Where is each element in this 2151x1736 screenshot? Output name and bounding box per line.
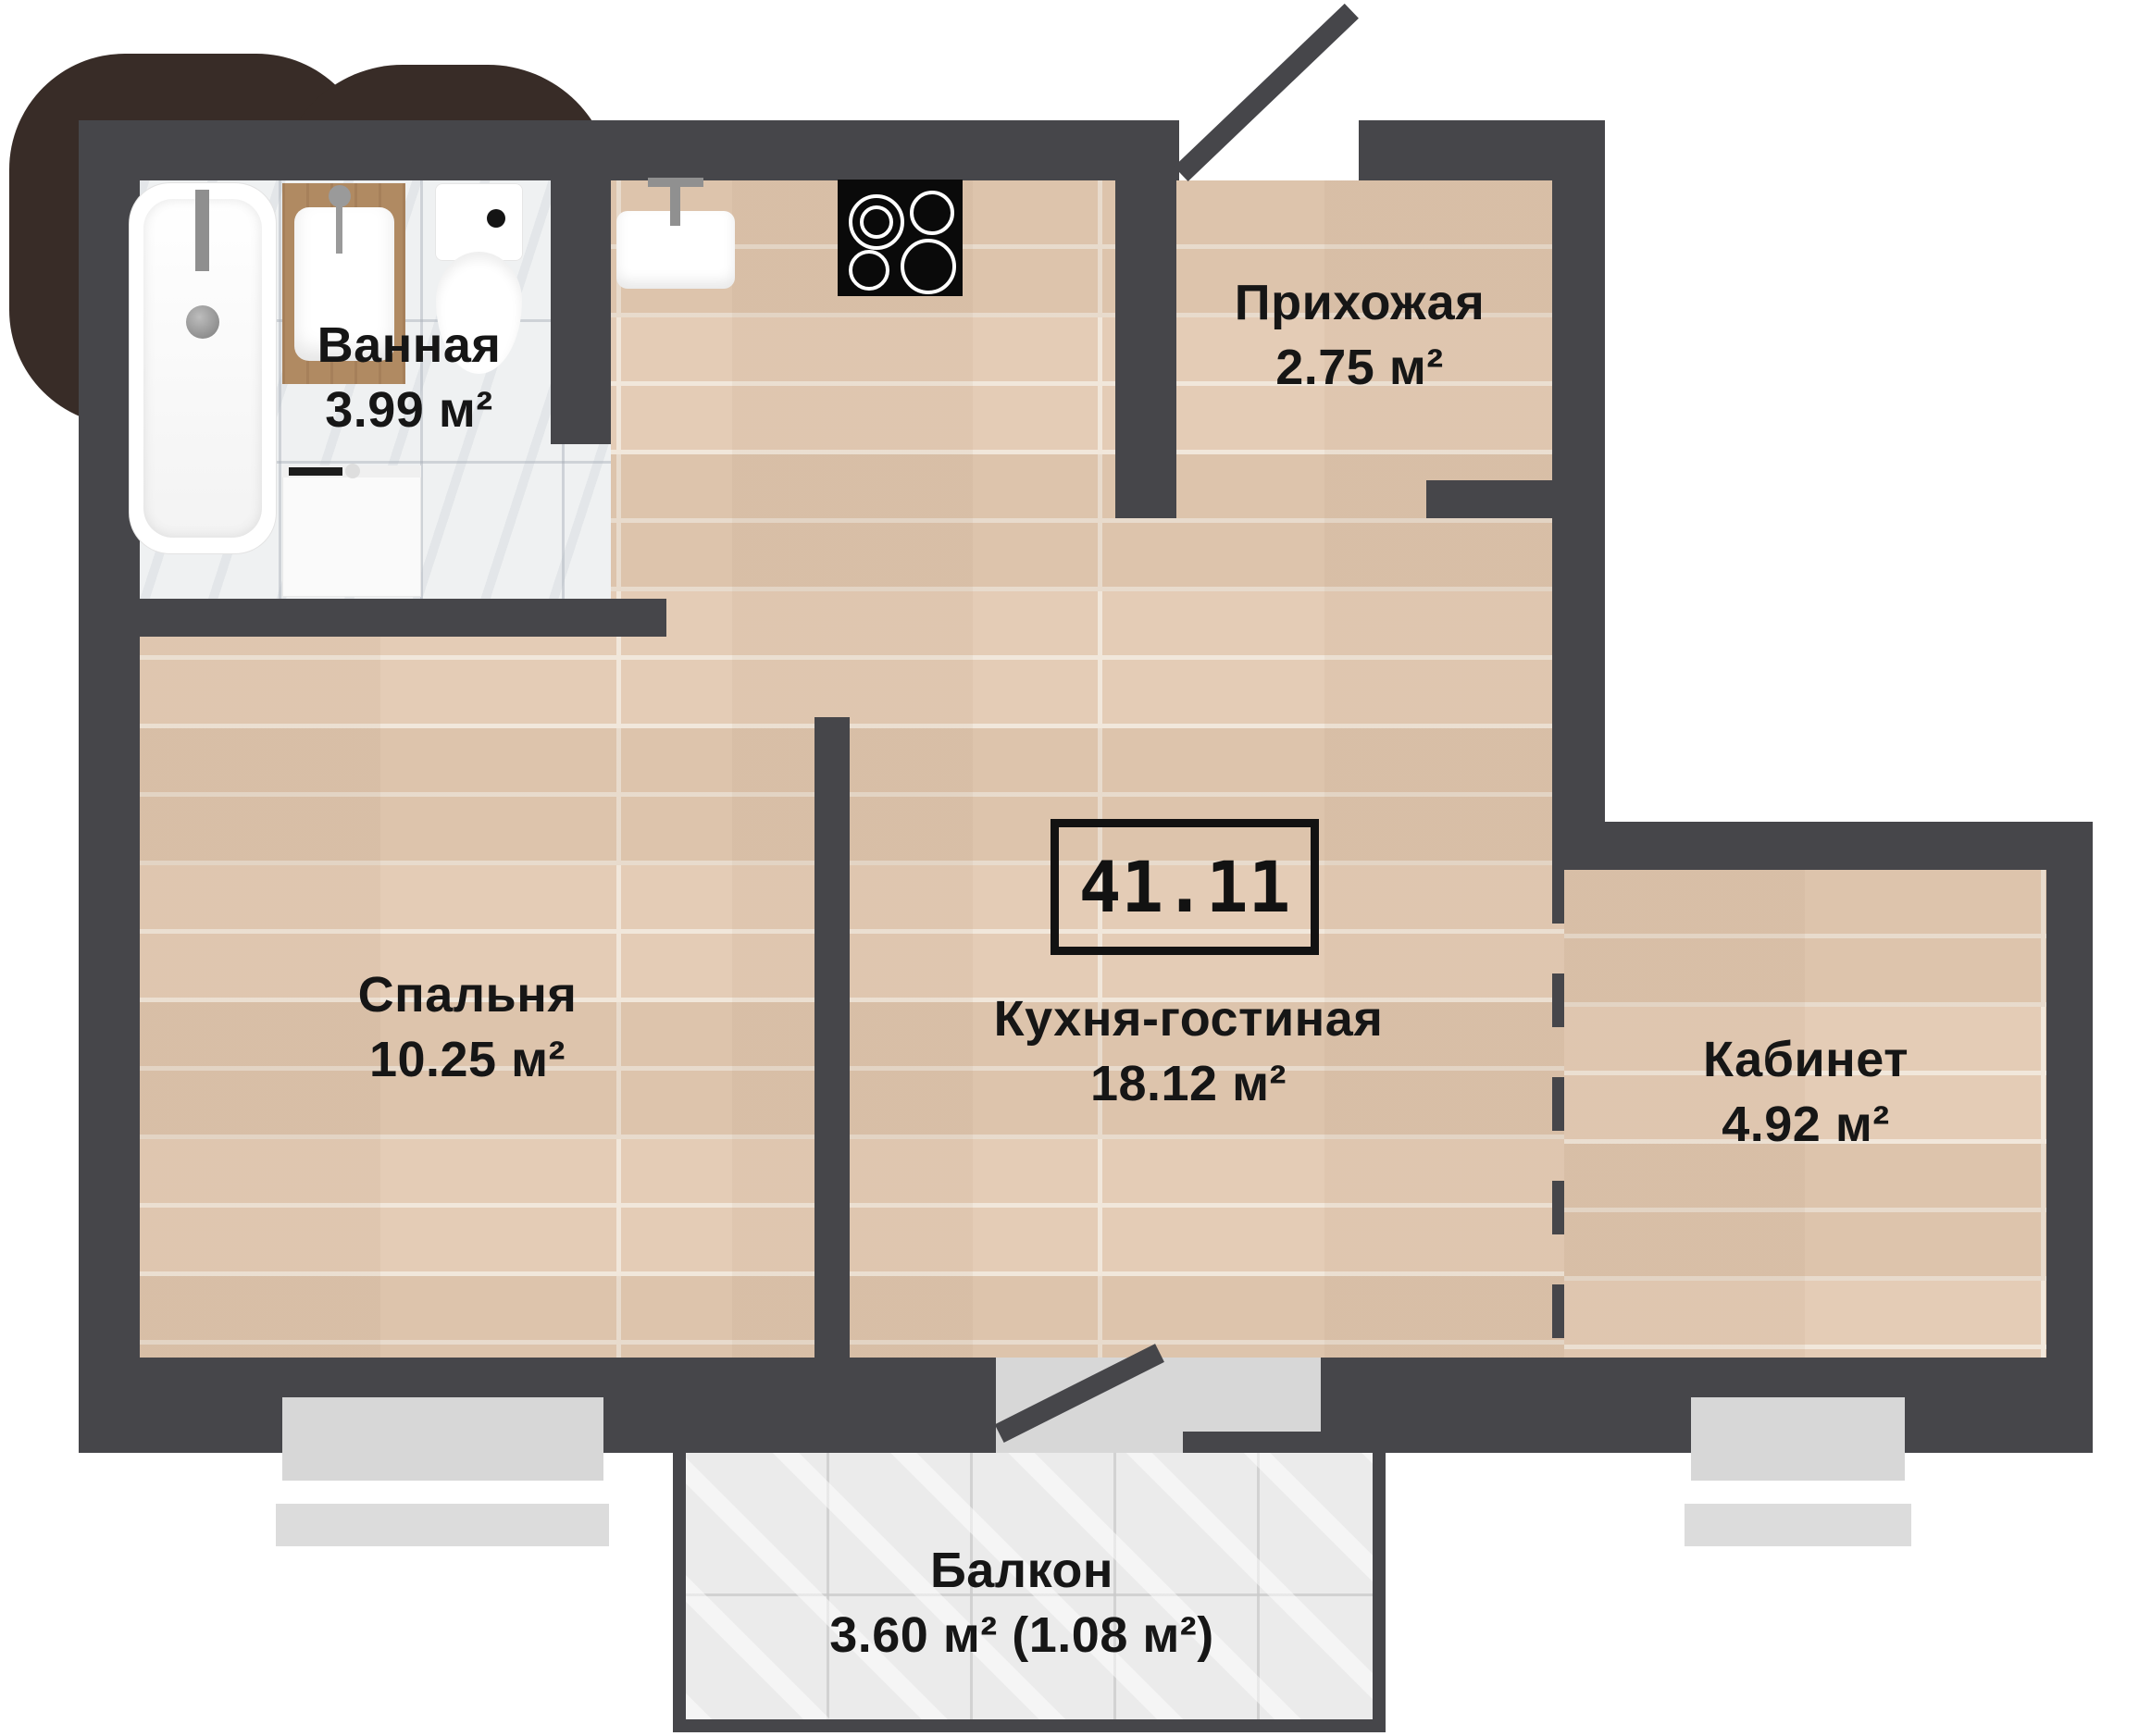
wall-hallway-bottom-stub xyxy=(1426,480,1552,518)
room-name-bathroom: Ванная xyxy=(131,313,687,378)
washing-machine xyxy=(282,465,421,597)
entrance-door-leaf xyxy=(1174,4,1359,181)
room-area-hallway: 2.75 м² xyxy=(1128,335,1591,400)
stove-burner-bottom-right xyxy=(901,239,956,294)
bedroom-window xyxy=(282,1397,603,1481)
stove-burner-bottom-left xyxy=(849,250,889,291)
washing-machine-display xyxy=(289,467,342,476)
total-area-value: 41.11 xyxy=(1079,846,1291,928)
room-name-office: Кабинет xyxy=(1528,1027,2083,1092)
bathtub-faucet xyxy=(195,190,209,271)
room-label-kitchen-living: Кухня-гостиная 18.12 м² xyxy=(818,986,1559,1116)
room-label-balcony: Балкон 3.60 м² (1.08 м²) xyxy=(652,1538,1392,1668)
room-label-bathroom: Ванная 3.99 м² xyxy=(131,313,687,442)
bathroom-sink-faucet-knob xyxy=(329,185,351,207)
room-name-bedroom: Спальня xyxy=(190,962,745,1027)
toilet-tank xyxy=(435,183,523,261)
office-window-sill xyxy=(1685,1504,1911,1546)
room-area-balcony: 3.60 м² (1.08 м²) xyxy=(652,1603,1392,1668)
stove-burner-ring-inner xyxy=(860,205,893,239)
room-area-office: 4.92 м² xyxy=(1528,1092,2083,1157)
wall-office-top xyxy=(1552,822,2093,870)
stove-burner-top-right xyxy=(910,191,954,235)
balcony-window-sill-wall xyxy=(1183,1432,1321,1453)
room-area-kitchen-living: 18.12 м² xyxy=(818,1051,1559,1116)
floor-plan: Ванная 3.99 м² Прихожая 2.75 м² Спальня … xyxy=(0,0,2151,1736)
total-area-box: 41.11 xyxy=(1051,819,1319,955)
wall-bathroom-bottom xyxy=(79,599,666,637)
kitchen-faucet-stem xyxy=(670,183,680,226)
kitchen-sink xyxy=(611,178,742,291)
room-label-bedroom: Спальня 10.25 м² xyxy=(190,962,745,1092)
room-label-hallway: Прихожая 2.75 м² xyxy=(1128,270,1591,400)
wall-right-upper xyxy=(1552,120,1605,822)
balcony-wall-bottom xyxy=(673,1719,1386,1732)
room-label-office: Кабинет 4.92 м² xyxy=(1528,1027,2083,1157)
room-name-kitchen-living: Кухня-гостиная xyxy=(818,986,1559,1051)
kitchen-faucet-bar xyxy=(648,178,703,187)
room-area-bathroom: 3.99 м² xyxy=(131,378,687,442)
washing-machine-knob xyxy=(345,464,360,478)
stove xyxy=(838,180,963,296)
room-area-bedroom: 10.25 м² xyxy=(190,1027,745,1092)
office-window xyxy=(1691,1397,1905,1481)
room-name-hallway: Прихожая xyxy=(1128,270,1591,335)
wall-top-left xyxy=(79,120,1179,180)
room-name-balcony: Балкон xyxy=(652,1538,1392,1603)
bedroom-window-sill xyxy=(276,1504,609,1546)
toilet-flush-button xyxy=(487,209,505,228)
